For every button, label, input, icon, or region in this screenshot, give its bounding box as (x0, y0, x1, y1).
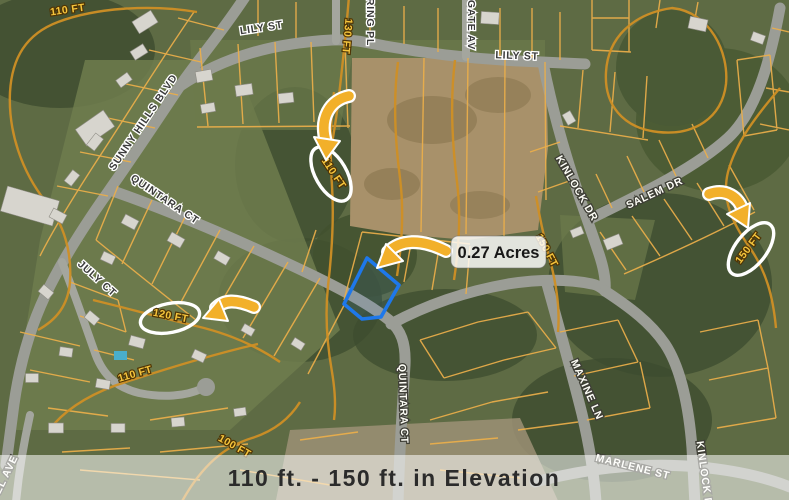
banner-text: 110 ft. - 150 ft. in Elevation (228, 465, 561, 491)
building-footprint (195, 69, 213, 83)
building-footprint (278, 92, 294, 104)
acreage-label-text: 0.27 Acres (458, 244, 540, 262)
aerial-parcel-map: LILY ST LILY ST RING PL GATE AV SUNNY HI… (0, 0, 789, 500)
street-label-ring-pl: RING PL (364, 0, 376, 46)
building-footprint (235, 83, 253, 96)
building-footprint (111, 424, 125, 433)
swimming-pool (114, 351, 127, 360)
forest-patch (616, 10, 728, 126)
dirt-patch (387, 96, 477, 144)
dirt-patch (364, 168, 420, 200)
street-label-gate-av: GATE AV (465, 0, 477, 50)
elevation-banner: 110 ft. - 150 ft. in Elevation (0, 455, 789, 500)
dirt-patch (465, 77, 531, 113)
building-footprint (59, 347, 73, 358)
building-footprint (481, 11, 500, 24)
building-footprint (49, 423, 64, 433)
acreage-callout: 0.27 Acres (451, 236, 546, 268)
street-label-lily-st-east: LILY ST (495, 49, 539, 63)
building-footprint (26, 374, 39, 383)
map-canvas: LILY ST LILY ST RING PL GATE AV SUNNY HI… (0, 0, 789, 500)
july-ct-cul-de-sac (197, 378, 215, 396)
building-footprint (234, 407, 247, 417)
building-footprint (171, 417, 185, 427)
